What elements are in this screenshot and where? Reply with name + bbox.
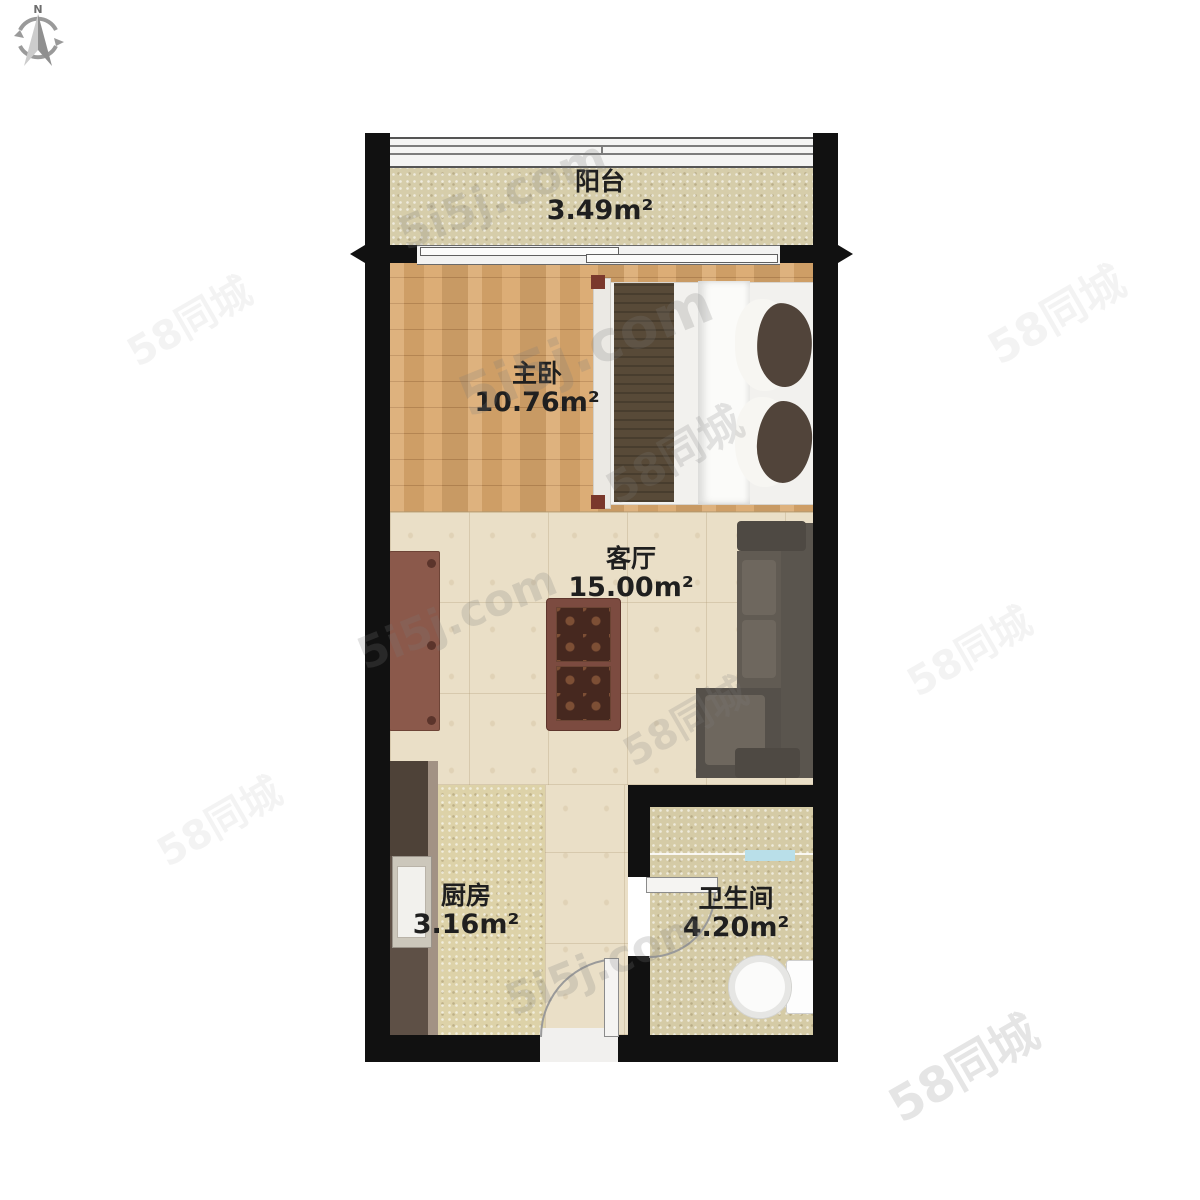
living-room-area: 15.00m² (568, 573, 693, 603)
bathroom-shelf (745, 850, 795, 861)
bedroom-area: 10.76m² (474, 388, 599, 418)
coffee-table-panel (556, 607, 611, 662)
bathroom-wall-top (628, 785, 813, 807)
watermark: 58同城 (145, 760, 291, 878)
bathroom-name: 卫生间 (683, 885, 790, 913)
wall-bottom-left (365, 1035, 540, 1062)
wall-cap-left-icon (350, 245, 365, 263)
sofa-armrest-top (737, 521, 806, 551)
entry-door-leaf (604, 958, 619, 1037)
kitchen-name: 厨房 (413, 882, 520, 910)
sofa-backrest (781, 523, 813, 778)
wall-stub-right (779, 245, 838, 263)
wall-cap-right-icon (838, 245, 853, 263)
sliding-door-panel-right (586, 254, 778, 263)
coffee-table-panel (556, 666, 611, 721)
watermark: 58同城 (974, 247, 1135, 377)
watermark: 58同城 (873, 994, 1049, 1136)
watermark: 58同城 (895, 590, 1041, 708)
bathroom-area: 4.20m² (683, 913, 790, 943)
kitchen-area: 3.16m² (413, 910, 520, 940)
cabinet-knob (427, 641, 436, 650)
balcony-window-mullion (601, 145, 603, 154)
living-room-name: 客厅 (568, 545, 693, 573)
kitchen-label: 厨房 3.16m² (413, 882, 520, 940)
compass-north-icon: N (8, 2, 68, 72)
sofa-cushion (742, 560, 776, 615)
wall-left (365, 133, 390, 1062)
balcony-name: 阳台 (547, 168, 654, 196)
living-room-label: 客厅 15.00m² (568, 545, 693, 603)
bedroom-name: 主卧 (474, 360, 599, 388)
watermark: 58同城 (115, 260, 261, 378)
sofa-cushion (742, 620, 776, 678)
sofa-armrest-bottom (735, 748, 800, 778)
wall-stub-left (365, 245, 418, 263)
wall-bottom-right (618, 1035, 838, 1062)
balcony-area: 3.49m² (547, 196, 654, 226)
cabinet-knob (427, 716, 436, 725)
toilet-bowl (728, 955, 792, 1019)
wall-right (813, 133, 838, 1062)
balcony-label: 阳台 3.49m² (547, 168, 654, 226)
bed-blanket (614, 283, 674, 502)
bed-post (591, 495, 605, 509)
floorplan: 阳台 3.49m² 主卧 10.76m² 客厅 15.00m² 厨房 3.16m… (365, 131, 838, 1062)
bed-post (591, 275, 605, 289)
floorplan-canvas: N (0, 0, 1200, 1200)
bedroom-label: 主卧 10.76m² (474, 360, 599, 418)
bathroom-label: 卫生间 4.20m² (683, 885, 790, 943)
floor-seam (390, 511, 813, 513)
bathroom-wall-left-upper (628, 785, 650, 877)
bathroom-wall-left-lower (628, 956, 650, 1062)
cabinet-knob (427, 559, 436, 568)
